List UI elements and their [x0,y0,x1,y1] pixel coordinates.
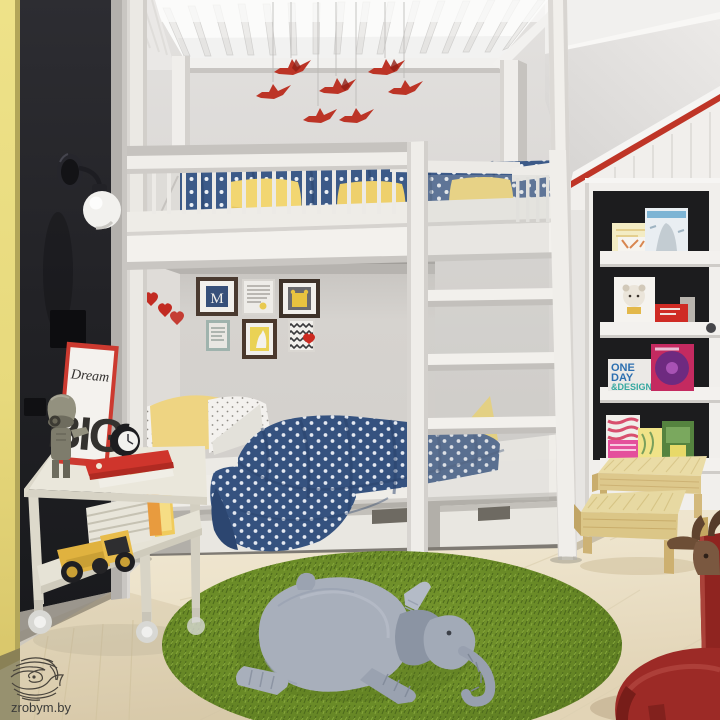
svg-text:M: M [210,291,223,307]
svg-text:&DESIGN: &DESIGN [611,382,652,392]
svg-text:zrobym.by: zrobym.by [11,700,71,715]
